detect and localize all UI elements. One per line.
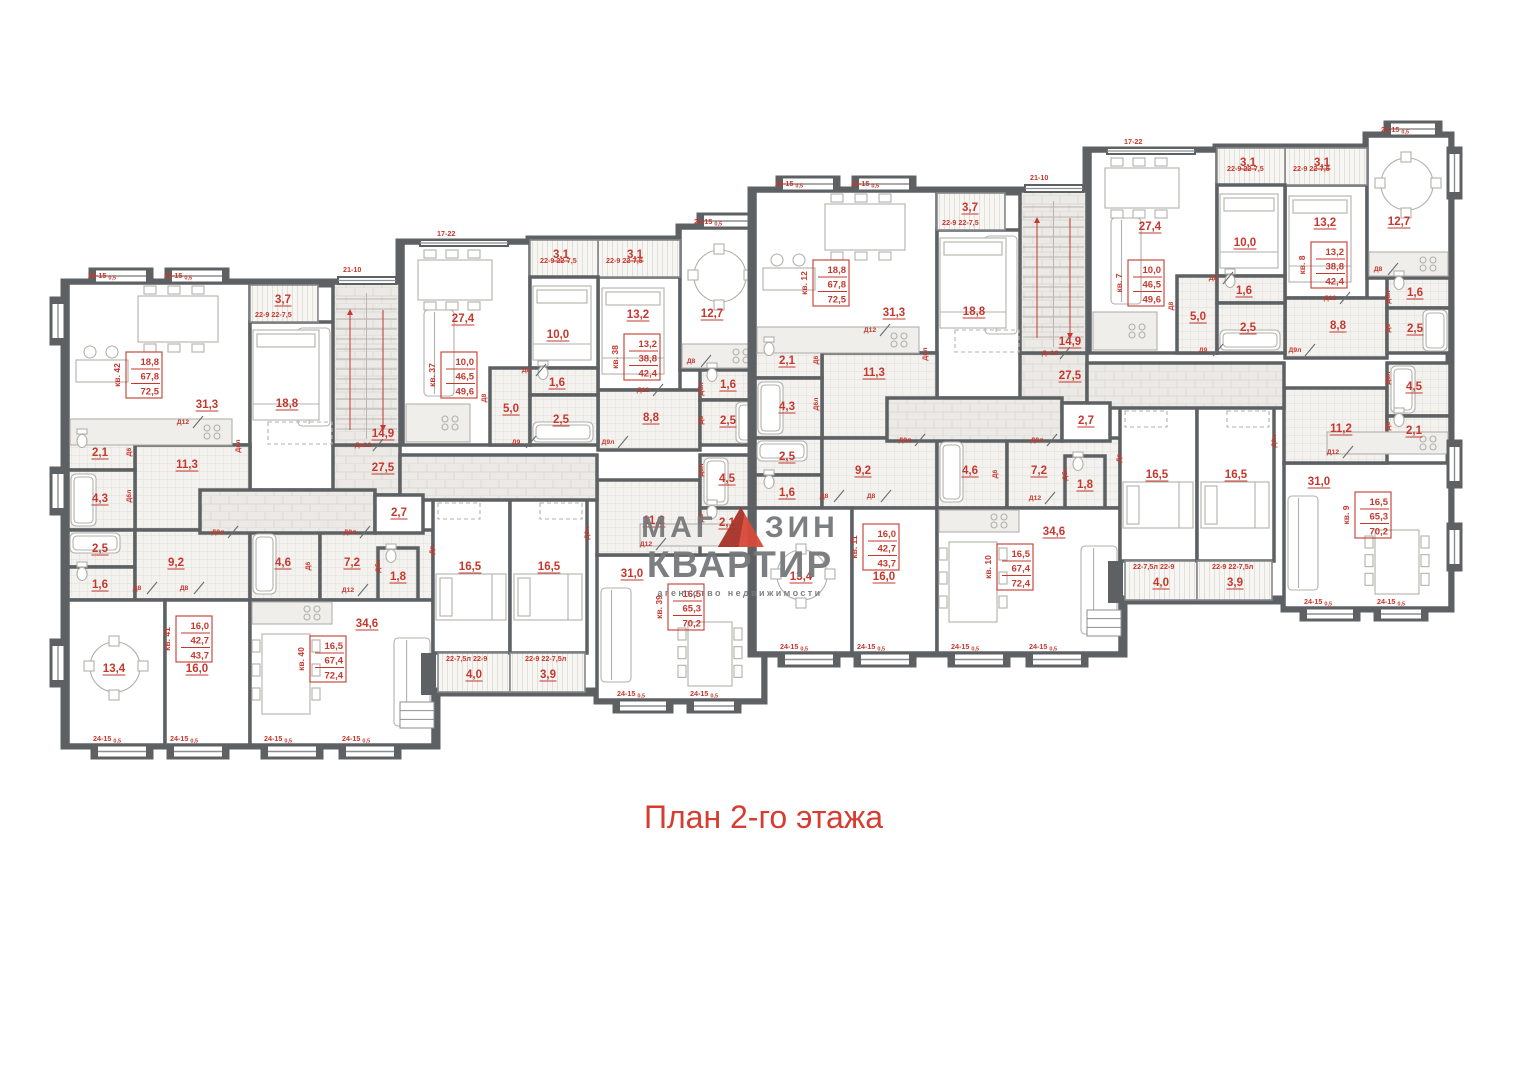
label: 31,3: [196, 399, 218, 411]
label: Д8: [867, 493, 876, 500]
label: 4,3: [92, 493, 108, 505]
label: Двл: [235, 439, 242, 452]
label: 49,6: [1143, 295, 1162, 306]
label: 18,8: [276, 398, 299, 410]
label: 34,6: [356, 618, 378, 630]
label: 31,0: [621, 568, 643, 580]
label: Д8л: [584, 527, 591, 540]
label: Д6л: [698, 464, 705, 477]
label: Дбл: [697, 382, 705, 395]
label: Д12: [177, 419, 190, 426]
label: 18,8: [828, 265, 847, 276]
label: 10,0: [547, 329, 569, 341]
label: Д12: [342, 587, 355, 594]
label: 4,0: [1153, 577, 1169, 589]
label: 1,6: [1407, 287, 1423, 299]
label: Д8: [180, 585, 189, 592]
label: 38,8: [639, 354, 658, 365]
label: 42,7: [878, 544, 897, 555]
label: 65,3: [1370, 512, 1389, 523]
label: кв. 12: [799, 271, 809, 295]
label: Д6л: [1385, 372, 1392, 385]
label: 4,5: [719, 473, 736, 485]
label: 22-7,5л 22-9: [1133, 562, 1174, 571]
label: Д9л: [1289, 347, 1302, 354]
label: Д6: [813, 355, 820, 364]
label: кв. 10: [983, 555, 993, 579]
label: 8,8: [1330, 320, 1347, 332]
label: 1,8: [390, 571, 407, 583]
label: 31,3: [883, 307, 905, 319]
label: кв. 11: [849, 535, 859, 558]
label: 4,3: [779, 401, 795, 413]
label: 72,5: [141, 387, 160, 398]
label: Д8л: [1271, 435, 1278, 448]
label: 8,8: [643, 412, 660, 424]
label: 10,0: [1143, 265, 1162, 276]
label: Д9: [512, 439, 521, 446]
label: 16,0: [878, 529, 897, 540]
label: 2,5: [92, 543, 109, 555]
floor-plan-canvas: 31,318,83,711,32,14,32,51,69,213,416,04,…: [0, 0, 1527, 1080]
label: 67,8: [828, 280, 847, 291]
label: 18,8: [963, 306, 986, 318]
label: 2,5: [1240, 322, 1257, 334]
label: Д6л: [813, 398, 820, 411]
label: 3,9: [1227, 577, 1243, 589]
label: 13,4: [790, 571, 813, 583]
label: 16,0: [191, 621, 210, 632]
label: 2,5: [553, 414, 570, 426]
label: 17-22: [437, 229, 455, 238]
label: 17-22: [1124, 137, 1142, 146]
label: Д8: [687, 358, 696, 365]
label: 7,2: [344, 557, 360, 569]
label: Д8: [481, 393, 488, 402]
label: 1,6: [720, 379, 736, 391]
entrance-steps: [400, 702, 434, 728]
label: 13,2: [639, 339, 658, 350]
label: 2,1: [92, 447, 109, 459]
label: 7,2: [1031, 465, 1047, 477]
label: Двл: [922, 347, 929, 360]
label: Д8: [1374, 266, 1383, 273]
label: Д8: [1168, 301, 1175, 310]
label: 21-10: [1030, 173, 1048, 182]
label: 13,2: [1326, 247, 1345, 258]
stairwell: [1020, 191, 1087, 353]
label: 10,0: [1234, 237, 1256, 249]
label: 42,4: [1326, 277, 1345, 288]
label: 16,0: [186, 663, 208, 675]
label: кв. 39: [654, 595, 664, 619]
room-rect: [200, 490, 375, 533]
label: 16,5: [325, 641, 344, 652]
label: Д8: [522, 367, 531, 374]
building-section-right: 31,318,83,711,32,14,32,51,69,213,416,04,…: [752, 122, 1461, 666]
label: 1,6: [549, 377, 565, 389]
label: 11,2: [643, 515, 665, 527]
label: кв. 7: [1114, 273, 1124, 292]
label: Дв: [429, 545, 436, 554]
label: 22-9 22-7,5л: [525, 654, 567, 663]
label: Дбл: [1061, 467, 1069, 480]
room-rect: [135, 530, 250, 600]
label: 16,5: [1225, 469, 1248, 481]
entrance-steps: [1087, 610, 1121, 636]
label: 3,7: [962, 202, 978, 214]
label: кв. 37: [427, 363, 437, 387]
label: 67,4: [325, 656, 344, 667]
label: 10,0: [456, 357, 475, 368]
label: Д12: [637, 387, 650, 394]
label: Д6: [1385, 421, 1392, 430]
label: 27,5: [1059, 370, 1082, 382]
label: кв. 9: [1341, 505, 1351, 524]
stairwell: [333, 283, 400, 445]
label: 22-9 22-7,5л: [1212, 562, 1254, 571]
label: 27,4: [452, 313, 475, 325]
label: 22-9 22-7,5: [1227, 164, 1264, 173]
label: 13,2: [627, 309, 649, 321]
label: кв. 40: [296, 647, 306, 671]
label: 16,5: [683, 589, 702, 600]
label: 72,5: [828, 295, 847, 306]
label: 49,6: [456, 387, 475, 398]
label: Дв: [1116, 453, 1123, 462]
label: 16,5: [1370, 497, 1389, 508]
label: Дн12: [355, 442, 372, 449]
label: Д8: [133, 585, 142, 592]
label: 1,8: [1077, 479, 1094, 491]
label: 11,3: [176, 459, 198, 471]
label: 11,2: [1330, 423, 1352, 435]
label: Д9л: [602, 439, 615, 446]
label: 27,5: [372, 462, 395, 474]
label: 38,8: [1326, 262, 1345, 273]
label: 3,7: [275, 294, 291, 306]
label: Д6: [698, 513, 705, 522]
label: 1,6: [92, 579, 108, 591]
label: 43,7: [878, 559, 897, 570]
label: Д8: [1209, 275, 1218, 282]
label: Д9л: [212, 529, 225, 536]
label: Д6: [126, 447, 133, 456]
room-rect: [887, 398, 1062, 441]
label: 5,0: [503, 403, 519, 415]
room-rect: [400, 455, 597, 500]
building-section-left: 31,318,83,711,32,14,32,51,69,213,416,04,…: [51, 214, 763, 758]
label: 4,6: [275, 557, 291, 569]
label: 18,8: [141, 357, 160, 368]
label: Д6: [305, 561, 312, 570]
label: 16,5: [1146, 469, 1169, 481]
label: 2,1: [719, 517, 736, 529]
label: Д9л: [1031, 437, 1044, 444]
label: 34,6: [1043, 526, 1065, 538]
label: кв. 8: [1297, 255, 1307, 274]
label: 67,8: [141, 372, 160, 383]
label: 4,6: [962, 465, 978, 477]
label: 4,5: [1406, 381, 1423, 393]
label: 2,1: [779, 355, 796, 367]
room-rect: [1087, 363, 1284, 408]
label: 5,0: [1190, 311, 1206, 323]
label: 12,7: [701, 308, 723, 320]
label: 16,5: [459, 561, 482, 573]
label: 16,5: [538, 561, 561, 573]
label: 14,9: [372, 428, 394, 440]
label: 16,0: [873, 571, 895, 583]
label: Дбл: [1384, 290, 1392, 303]
label: Д12: [1324, 295, 1337, 302]
label: 42,4: [639, 369, 658, 380]
label: Д12: [1029, 495, 1042, 502]
label: Д12: [864, 327, 877, 334]
label: 43,7: [191, 651, 210, 662]
label: 2,1: [1406, 425, 1423, 437]
label: 2,5: [779, 451, 796, 463]
label: 14,9: [1059, 336, 1081, 348]
label: Д9: [1199, 347, 1208, 354]
label: 16,5: [1012, 549, 1031, 560]
floor-plan-svg: 31,318,83,711,32,14,32,51,69,213,416,04,…: [0, 0, 1527, 1080]
label: 2,5: [720, 415, 737, 427]
label: кв. 42: [112, 363, 122, 387]
label: 2,7: [391, 507, 407, 519]
label: кв. 38: [610, 345, 620, 369]
label: 22-9 22-7,5: [540, 256, 577, 265]
page-title: План 2-го этажа: [0, 799, 1527, 836]
label: 1,6: [1236, 285, 1252, 297]
label: Д12: [1327, 449, 1340, 456]
label: 46,5: [456, 372, 475, 383]
label: 13,2: [1314, 217, 1336, 229]
label: Д8: [820, 493, 829, 500]
label: 70,2: [1370, 527, 1389, 538]
label: 12,7: [1388, 216, 1410, 228]
label: 2,7: [1078, 415, 1094, 427]
label: 1,6: [779, 487, 795, 499]
label: 2,5: [1407, 323, 1424, 335]
label: Дн12: [1042, 350, 1059, 357]
label: 46,5: [1143, 280, 1162, 291]
label: Д9л: [899, 437, 912, 444]
label: Дбл: [374, 559, 382, 572]
label: 4,0: [466, 669, 482, 681]
label: Д6: [1385, 323, 1392, 332]
label: 3,9: [540, 669, 556, 681]
label: Д6: [698, 415, 705, 424]
label: 22-9 22-7,5: [1293, 164, 1330, 173]
label: 65,3: [683, 604, 702, 615]
label: Д6л: [126, 490, 133, 503]
label: 22-9 22-7,5: [606, 256, 643, 265]
label: 22-9 22-7,5: [942, 218, 979, 227]
label: 9,2: [855, 465, 871, 477]
label: 72,4: [325, 671, 344, 682]
label: 67,4: [1012, 564, 1031, 575]
label: 9,2: [168, 557, 184, 569]
label: 21-10: [343, 265, 361, 274]
label: 72,4: [1012, 579, 1031, 590]
label: 31,0: [1308, 476, 1330, 488]
porch-wall: [1108, 561, 1123, 603]
label: 22-9 22-7,5: [255, 310, 292, 319]
label: кв. 41: [162, 627, 172, 651]
label: 27,4: [1139, 221, 1162, 233]
label: 11,3: [863, 367, 885, 379]
label: 42,7: [191, 636, 210, 647]
porch-wall: [421, 653, 436, 695]
label: Д12: [640, 541, 653, 548]
room-rect: [822, 438, 937, 508]
label: Д6: [992, 469, 999, 478]
label: Д9л: [344, 529, 357, 536]
label: 70,2: [683, 619, 702, 630]
floor-plan-page: 31,318,83,711,32,14,32,51,69,213,416,04,…: [0, 0, 1527, 1080]
label: 13,4: [103, 663, 126, 675]
label: 22-7,5л 22-9: [446, 654, 487, 663]
